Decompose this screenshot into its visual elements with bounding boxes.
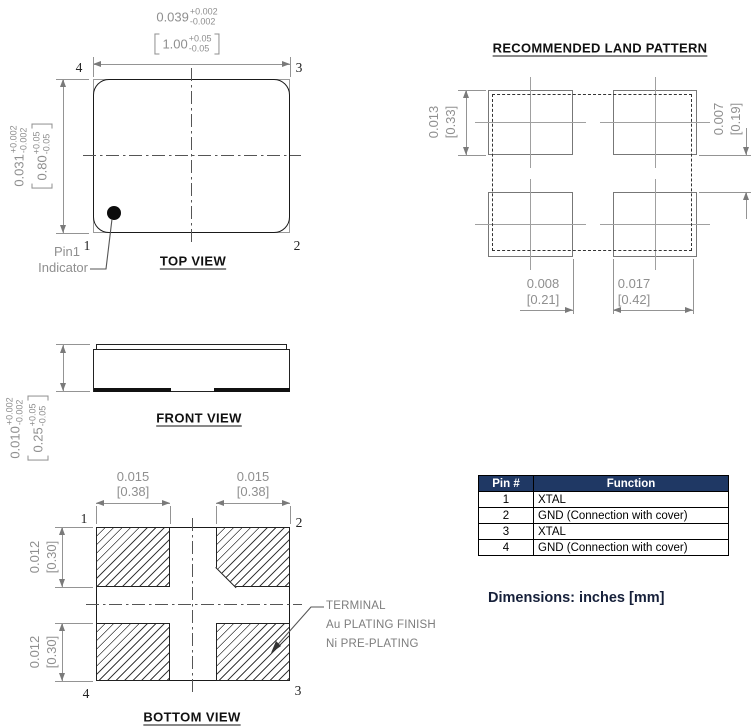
extension-line bbox=[55, 623, 93, 624]
top-height-dim-inch: 0.031+0.002-0.002 bbox=[10, 125, 29, 186]
dim-value: 0.80 bbox=[35, 155, 49, 180]
terminal-pad-4 bbox=[96, 623, 170, 681]
front-terminal-right bbox=[214, 388, 290, 392]
extension-line bbox=[96, 506, 97, 524]
dim-value: 0.010 bbox=[8, 426, 22, 459]
top-view-pin2-label: 2 bbox=[294, 238, 301, 254]
tolerance-stack: +0.002-0.002 bbox=[6, 397, 25, 425]
dim-value: 0.012 bbox=[28, 636, 42, 669]
dim-arrow bbox=[60, 79, 66, 87]
pin-cell: 4 bbox=[479, 540, 534, 556]
extension-line bbox=[55, 681, 93, 682]
extension-line bbox=[93, 57, 94, 77]
land-col-gap-mm: [0.21] bbox=[527, 293, 560, 307]
front-height-dim: 0.010+0.002-0.002 0.25+0.05-0.05 bbox=[6, 395, 49, 460]
dim-arrow bbox=[743, 147, 749, 155]
top-view-pin3-label: 3 bbox=[296, 60, 303, 76]
extension-line bbox=[216, 506, 217, 524]
extension-line bbox=[55, 527, 93, 528]
tol-minus: -0.002 bbox=[190, 17, 218, 27]
bracket-group: 1.00+0.05-0.05 bbox=[154, 34, 219, 55]
pin-cell: 2 bbox=[479, 508, 534, 524]
bottom-pad-width-inch-left: 0.015 bbox=[117, 470, 150, 484]
dim-arrow bbox=[93, 61, 101, 67]
extension-line bbox=[613, 259, 614, 314]
dim-arrow bbox=[162, 500, 170, 506]
terminal-pad-3 bbox=[216, 623, 290, 681]
tolerance-stack: +0.002-0.002 bbox=[190, 8, 218, 27]
table-header-row: Pin # Function bbox=[479, 476, 729, 492]
dim-arrow bbox=[685, 307, 693, 313]
front-height-dim-mm: 0.25+0.05-0.05 bbox=[28, 395, 49, 460]
dim-value: 0.012 bbox=[28, 541, 42, 574]
bracket-left bbox=[154, 34, 159, 55]
bottom-view-pin1-label: 1 bbox=[81, 511, 88, 527]
extension-line bbox=[573, 259, 574, 314]
bottom-view-pin2-label: 2 bbox=[296, 515, 303, 531]
bottom-view-label: BOTTOM VIEW bbox=[143, 710, 240, 725]
tol-minus: -0.05 bbox=[38, 403, 48, 426]
dim-arrow bbox=[282, 61, 290, 67]
dimension-line bbox=[96, 503, 170, 504]
dim-value: 0.25 bbox=[31, 427, 45, 452]
top-view-label: TOP VIEW bbox=[160, 254, 226, 269]
extension-line bbox=[56, 233, 89, 234]
extension-line bbox=[55, 587, 93, 588]
front-view-label: FRONT VIEW bbox=[156, 411, 242, 426]
terminal-note-line2: Au PLATING FINISH bbox=[326, 619, 436, 631]
dim-arrow bbox=[96, 500, 104, 506]
dim-arrow bbox=[282, 500, 290, 506]
dim-value-mm: [0.30] bbox=[45, 541, 59, 574]
tol-minus: -0.05 bbox=[42, 131, 52, 154]
bottom-pad-height-dim-top: 0.012 [0.30] bbox=[28, 541, 58, 574]
front-terminal-left bbox=[94, 388, 171, 392]
table-row: 3 XTAL bbox=[479, 524, 729, 540]
top-view-pin1-label: 1 bbox=[84, 238, 91, 254]
tolerance-stack: +0.05-0.05 bbox=[33, 131, 52, 154]
dim-arrow bbox=[216, 500, 224, 506]
bottom-pad-width-mm-left: [0.38] bbox=[117, 485, 150, 499]
dim-value-mm: [0.30] bbox=[45, 636, 59, 669]
function-cell: XTAL bbox=[534, 524, 729, 540]
pin-cell: 1 bbox=[479, 492, 534, 508]
bracket-right bbox=[215, 34, 220, 55]
extension-line bbox=[56, 344, 90, 345]
dim-value: 0.013 bbox=[427, 106, 441, 139]
bracket-left bbox=[32, 184, 53, 189]
land-row-gap-dim: 0.007 [0.19] bbox=[712, 103, 742, 136]
top-view-pin4-label: 4 bbox=[76, 60, 83, 76]
tolerance-stack: +0.05-0.05 bbox=[29, 403, 48, 426]
front-height-dim-inch: 0.010+0.002-0.002 bbox=[6, 397, 25, 458]
dim-value: 1.00 bbox=[162, 37, 187, 51]
dim-arrow bbox=[743, 192, 749, 200]
dim-arrow bbox=[613, 307, 621, 313]
units-note: Dimensions: inches [mm] bbox=[488, 590, 664, 606]
land-pattern-package-outline bbox=[492, 94, 692, 251]
center-line-vertical bbox=[192, 518, 193, 692]
dim-value: 0.031 bbox=[12, 154, 26, 187]
dimension-line bbox=[62, 527, 63, 587]
dimension-line bbox=[466, 90, 467, 155]
function-cell: XTAL bbox=[534, 492, 729, 508]
bottom-pad-width-mm-right: [0.38] bbox=[237, 485, 270, 499]
pin-number-header: Pin # bbox=[479, 476, 534, 492]
terminal-note-line3: Ni PRE-PLATING bbox=[326, 638, 419, 650]
extension-line bbox=[693, 259, 694, 314]
table-row: 4 GND (Connection with cover) bbox=[479, 540, 729, 556]
dim-value: 0.039 bbox=[156, 10, 189, 24]
extension-line bbox=[170, 506, 171, 524]
bracket-right bbox=[28, 395, 49, 400]
dim-value-mm: [0.33] bbox=[444, 106, 458, 139]
extension-line bbox=[458, 155, 486, 156]
land-pad-width-inch: 0.017 bbox=[618, 277, 651, 291]
tol-minus: -0.05 bbox=[189, 44, 212, 54]
top-height-dim: 0.031+0.002-0.002 0.80+0.05-0.05 bbox=[10, 123, 53, 188]
extension-line bbox=[56, 391, 90, 392]
dimension-line bbox=[216, 503, 290, 504]
land-pad-height-dim: 0.013 [0.33] bbox=[427, 106, 457, 139]
dim-arrow bbox=[565, 307, 573, 313]
table-row: 1 XTAL bbox=[479, 492, 729, 508]
dim-arrow bbox=[60, 383, 66, 391]
extension-line bbox=[56, 79, 89, 80]
center-line-horizontal bbox=[86, 604, 302, 605]
extension-line bbox=[699, 155, 751, 156]
bottom-view-pin4-label: 4 bbox=[83, 686, 90, 702]
function-header: Function bbox=[534, 476, 729, 492]
extension-line bbox=[290, 57, 291, 77]
center-line-vertical bbox=[191, 68, 192, 246]
front-view-body bbox=[93, 349, 290, 392]
pin1-note-line2: Indicator bbox=[2, 260, 88, 275]
dim-arrow bbox=[60, 225, 66, 233]
pin-cell: 3 bbox=[479, 524, 534, 540]
dim-arrow bbox=[463, 90, 469, 98]
top-width-dim-inch: 0.039+0.002-0.002 bbox=[156, 8, 217, 27]
bracket-left bbox=[28, 456, 49, 461]
dim-arrow bbox=[59, 579, 65, 587]
center-line-horizontal bbox=[83, 155, 301, 156]
dim-value-mm: [0.19] bbox=[729, 103, 743, 136]
dim-value: 0.007 bbox=[712, 103, 726, 136]
extension-line bbox=[458, 90, 486, 91]
dim-arrow bbox=[59, 527, 65, 535]
function-cell: GND (Connection with cover) bbox=[534, 508, 729, 524]
tol-minus: -0.002 bbox=[19, 125, 29, 153]
terminal-pad-1 bbox=[96, 527, 170, 587]
pin-function-table: Pin # Function 1 XTAL 2 GND (Connection … bbox=[478, 475, 729, 556]
land-col-gap-inch: 0.008 bbox=[527, 277, 560, 291]
top-height-dim-mm: 0.80+0.05-0.05 bbox=[32, 123, 53, 188]
dimension-line bbox=[613, 310, 693, 311]
dim-arrow bbox=[60, 345, 66, 353]
table-row: 2 GND (Connection with cover) bbox=[479, 508, 729, 524]
bottom-pad-width-inch-right: 0.015 bbox=[237, 470, 270, 484]
package-drawing-canvas: 0.039+0.002-0.002 1.00+0.05-0.05 0.031+0… bbox=[0, 0, 752, 728]
tolerance-stack: +0.002-0.002 bbox=[10, 125, 29, 153]
top-width-dim-mm: 1.00+0.05-0.05 bbox=[154, 34, 219, 55]
dimension-line bbox=[63, 79, 64, 233]
land-pad-width-mm: [0.42] bbox=[618, 293, 651, 307]
dim-arrow bbox=[59, 623, 65, 631]
pin1-note-line1: Pin1 bbox=[28, 244, 80, 259]
tol-minus: -0.002 bbox=[15, 397, 25, 425]
extension-line bbox=[290, 506, 291, 524]
function-cell: GND (Connection with cover) bbox=[534, 540, 729, 556]
tolerance-stack: +0.05-0.05 bbox=[189, 35, 212, 54]
bottom-view-pin3-label: 3 bbox=[295, 683, 302, 699]
dimension-line bbox=[93, 64, 290, 65]
terminal-note-line1: TERMINAL bbox=[326, 600, 386, 612]
dim-arrow bbox=[59, 673, 65, 681]
land-pattern-title: RECOMMENDED LAND PATTERN bbox=[493, 41, 708, 56]
bottom-pad-height-dim-bottom: 0.012 [0.30] bbox=[28, 636, 58, 669]
dim-arrow bbox=[463, 147, 469, 155]
bracket-right bbox=[32, 123, 53, 128]
